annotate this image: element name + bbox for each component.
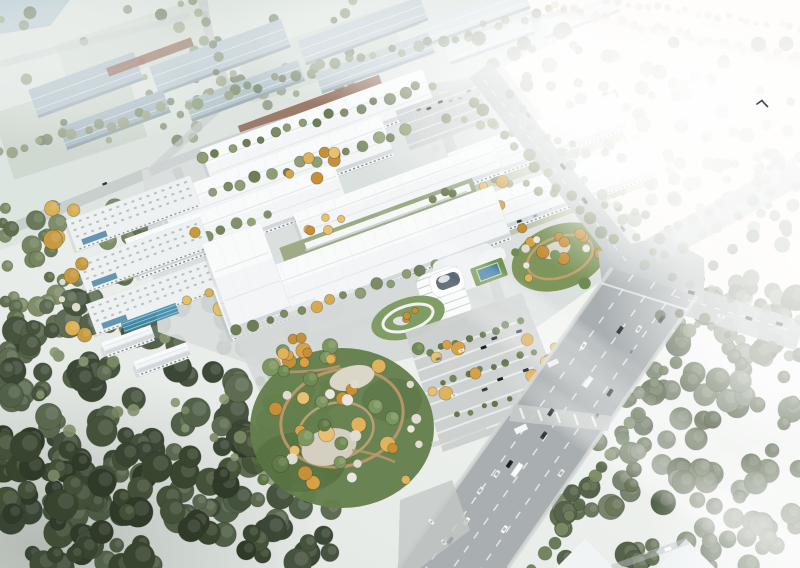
aerial-site-rendering [0, 0, 800, 568]
render-layers [0, 0, 800, 568]
aerial-rendering-figure [0, 0, 800, 568]
haze-intersection [520, 130, 760, 290]
